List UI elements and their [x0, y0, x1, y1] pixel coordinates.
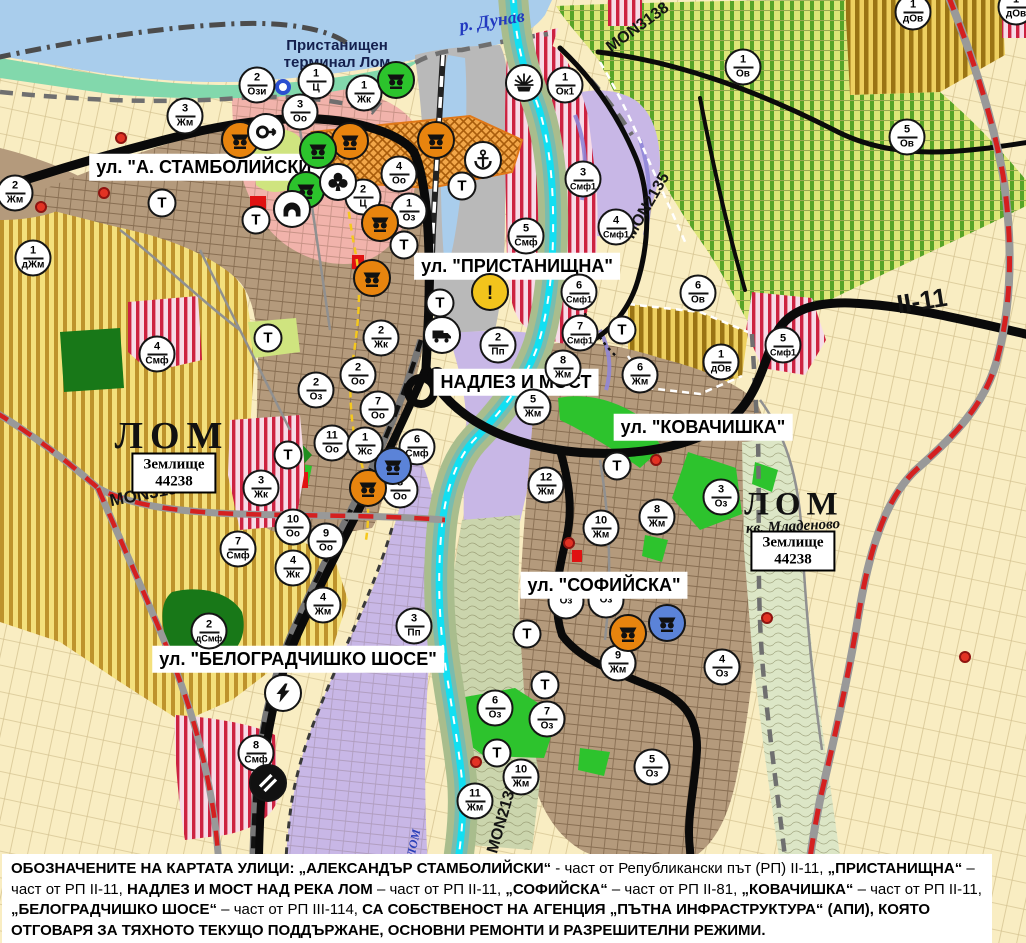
zone-marker: 5Жм [515, 389, 552, 426]
zone-marker: 8Жм [639, 499, 676, 536]
zone-marker: 3Оо [282, 94, 319, 131]
zone-marker: 12Жм [528, 467, 565, 504]
street-label: ул. "СОФИЙСКА" [520, 572, 687, 599]
blue-ring-icon [275, 79, 291, 95]
zone-marker: 9Оо [308, 523, 345, 560]
culture-monument-icon [377, 61, 415, 99]
cloverleaf-icon [319, 163, 357, 201]
lightning-icon [264, 674, 302, 712]
zone-marker: 1Ов [725, 49, 762, 86]
zone-marker: 6Смф1 [561, 274, 598, 311]
zone-marker: 10Жм [583, 510, 620, 547]
road-code-label: II-11 [895, 282, 950, 321]
zone-marker: 11Жм [457, 783, 494, 820]
street-label: ул. "БЕЛОГРАДЧИШКО ШОСЕ" [152, 646, 444, 673]
zone-marker: 3Смф1 [565, 161, 602, 198]
culture-monument-icon [648, 604, 686, 642]
t-marker: Т [148, 189, 177, 218]
t-marker: Т [254, 324, 283, 353]
zone-marker: 4Жм [305, 587, 342, 624]
red-dot-icon [563, 537, 575, 549]
t-marker: Т [426, 289, 455, 318]
zone-marker: 10Оо [275, 509, 312, 546]
zone-marker: 1дОв [998, 0, 1026, 26]
zone-marker: 3Оз [703, 479, 740, 516]
t-marker: Т [531, 671, 560, 700]
zone-marker: 7Смф1 [562, 315, 599, 352]
sun-rays-icon [505, 64, 543, 102]
zone-marker: 4Жк [275, 550, 312, 587]
zone-marker: 5Ов [889, 119, 926, 156]
t-marker: Т [242, 206, 271, 235]
svg-text:!: ! [487, 283, 493, 304]
red-dot-icon [115, 132, 127, 144]
zone-marker: 1дОв [703, 344, 740, 381]
zone-marker: 4Оз [704, 649, 741, 686]
t-marker: Т [608, 316, 637, 345]
place-label: ЛОМ [115, 414, 230, 458]
zone-marker: 5Смф1 [765, 327, 802, 364]
zone-marker: 7Оз [529, 701, 566, 738]
t-marker: Т [274, 441, 303, 470]
zone-marker: 3Пп [396, 608, 433, 645]
t-marker: Т [513, 620, 542, 649]
rail-crossing-icon [249, 764, 287, 802]
tunnel-icon [273, 190, 311, 228]
zone-marker: 7Оо [360, 391, 397, 428]
zone-marker: 10Жм [503, 759, 540, 796]
red-dot-icon [470, 756, 482, 768]
zone-marker: 6Оз [477, 690, 514, 727]
culture-monument-icon [417, 121, 455, 159]
zone-marker: 6Жм [622, 357, 659, 394]
zone-marker: 4Смф [139, 336, 176, 373]
zone-marker: 5Смф [508, 218, 545, 255]
land-parcel-label: Землище44238 [750, 531, 835, 572]
footer-note: ОБОЗНАЧЕНИТЕ НА КАРТАТА УЛИЦИ: „АЛЕКСАНД… [2, 854, 992, 943]
warning-icon: ! [471, 273, 509, 311]
zone-marker: 2Пп [480, 327, 517, 364]
zone-marker: 1Ок1 [547, 67, 584, 104]
zone-marker: 4Смф1 [598, 209, 635, 246]
zone-marker: 2Оз [298, 372, 335, 409]
zone-marker: 2дСмф [191, 613, 228, 650]
place-label: Пристанищен терминал Лом [284, 37, 391, 71]
t-marker: Т [603, 452, 632, 481]
map-overlay: 2Жм3Жм2Ози1Ц3Оо1Жк1Ок11дЖм4Оо2Ц1Оз4Смф5С… [0, 0, 1026, 943]
zone-marker: 2Ози [239, 67, 276, 104]
red-dot-icon [98, 187, 110, 199]
road-code-label: MON3138 [603, 0, 673, 57]
street-label: ул. "КОВАЧИШКА" [614, 414, 793, 441]
land-parcel-label: Землище44238 [131, 453, 216, 494]
culture-monument-icon [353, 259, 391, 297]
zone-marker: 1дОв [895, 0, 932, 31]
zone-marker: 11Оо [314, 425, 351, 462]
zone-marker: 4Оо [381, 156, 418, 193]
truck-icon [423, 316, 461, 354]
zone-marker: 2Оо [340, 357, 377, 394]
zone-marker: 6Ов [680, 275, 717, 312]
zoning-map: 2Жм3Жм2Ози1Ц3Оо1Жк1Ок11дЖм4Оо2Ц1Оз4Смф5С… [0, 0, 1026, 943]
zone-marker: 2Жм [0, 175, 34, 212]
red-dot-icon [35, 201, 47, 213]
red-dot-icon [650, 454, 662, 466]
circle-arrow-icon [247, 113, 285, 151]
street-label: ул. "ПРИСТАНИЩНА" [414, 253, 620, 280]
culture-monument-icon [361, 204, 399, 242]
zone-marker: 1дЖм [15, 240, 52, 277]
zone-marker: 7Смф [220, 531, 257, 568]
anchor-icon [464, 141, 502, 179]
zone-marker: 3Жм [167, 98, 204, 135]
culture-monument-icon [609, 614, 647, 652]
zone-marker: 5Оз [634, 749, 671, 786]
red-dot-icon [761, 612, 773, 624]
zone-marker: 3Жк [243, 470, 280, 507]
culture-monument-icon [331, 122, 369, 160]
zone-marker: 8Жм [545, 350, 582, 387]
zone-marker: 2Жк [363, 320, 400, 357]
red-dot-icon [959, 651, 971, 663]
place-label: р. Дунав [458, 5, 526, 36]
culture-monument-icon [374, 447, 412, 485]
